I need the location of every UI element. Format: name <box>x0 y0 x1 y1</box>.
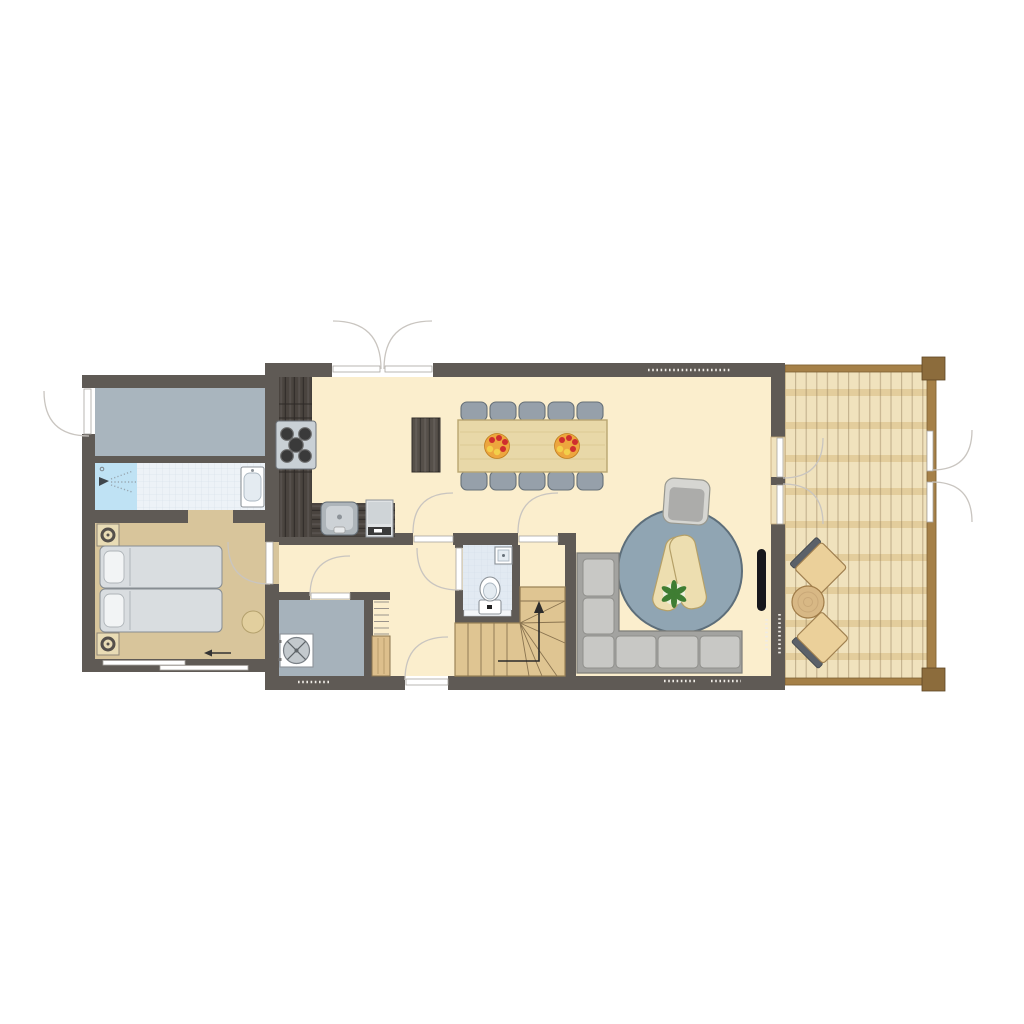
dining-chair <box>490 471 516 490</box>
terrace-door-bottom <box>777 485 783 524</box>
double-bed <box>100 546 222 632</box>
wc-door <box>456 548 462 590</box>
french-door-left <box>333 366 380 372</box>
entry-door <box>84 389 91 434</box>
dining-chairs-top <box>461 402 603 421</box>
terrace-door-top <box>777 438 783 477</box>
dining-chair <box>519 471 545 490</box>
corner-basin <box>495 547 512 564</box>
deck-gate-bottom <box>927 482 933 522</box>
deck-gate-top <box>927 431 933 471</box>
washbasin <box>241 467 264 507</box>
storage-room-floor <box>95 388 266 456</box>
living-door <box>519 536 558 542</box>
wc <box>463 545 512 616</box>
wall-tv <box>757 549 766 611</box>
bedroom-door <box>266 542 273 584</box>
deck-beam-top <box>785 365 927 372</box>
terrace-door-mullion <box>771 477 785 485</box>
french-door-arc-left <box>333 321 381 369</box>
fruit-bowl-1 <box>485 434 510 459</box>
armchair <box>662 478 710 526</box>
dining-chairs-bottom <box>461 471 603 490</box>
terrace-deck <box>785 357 945 691</box>
washing-machine-icon <box>279 634 314 667</box>
pouf <box>242 611 264 633</box>
dining-chair <box>461 402 487 421</box>
dining-chair <box>548 471 574 490</box>
bath-bedroom-opening <box>188 510 233 523</box>
wooden-cabinet <box>372 636 390 676</box>
dining-chair <box>461 471 487 490</box>
deck-side-table <box>792 586 824 618</box>
utility-room <box>279 600 365 676</box>
toilet-icon <box>479 577 501 614</box>
deck-post-bottom <box>922 668 945 691</box>
sideboard <box>412 418 440 472</box>
dining-chair <box>577 402 603 421</box>
shower-area <box>95 463 137 510</box>
french-door-arc-right <box>384 321 432 369</box>
bedside-table-bottom <box>97 633 119 655</box>
pillow <box>104 594 124 627</box>
floor-plan-canvas <box>0 0 1024 1024</box>
deck-beam-bottom <box>785 678 927 685</box>
french-door-right <box>385 366 432 372</box>
fruit-bowl-2 <box>555 434 580 459</box>
deck-post-top <box>922 357 945 380</box>
dining-chair <box>519 402 545 421</box>
dining-chair <box>548 402 574 421</box>
dining-chair <box>490 402 516 421</box>
coffee-machine <box>366 500 393 537</box>
floor-plan <box>0 0 1024 1024</box>
front-door <box>406 679 448 685</box>
dining-table <box>458 420 607 472</box>
gas-hob <box>276 421 316 469</box>
dining-chair <box>577 471 603 490</box>
kitchen-sink <box>321 502 358 535</box>
pillow <box>104 551 124 583</box>
left-wing <box>82 375 266 672</box>
utility-door <box>311 593 350 599</box>
deck-gate-arc-top <box>932 430 972 470</box>
kitchen-hall-door <box>414 536 453 542</box>
deck-gate-arc-bottom <box>932 482 972 522</box>
bedside-table-top <box>97 524 119 546</box>
